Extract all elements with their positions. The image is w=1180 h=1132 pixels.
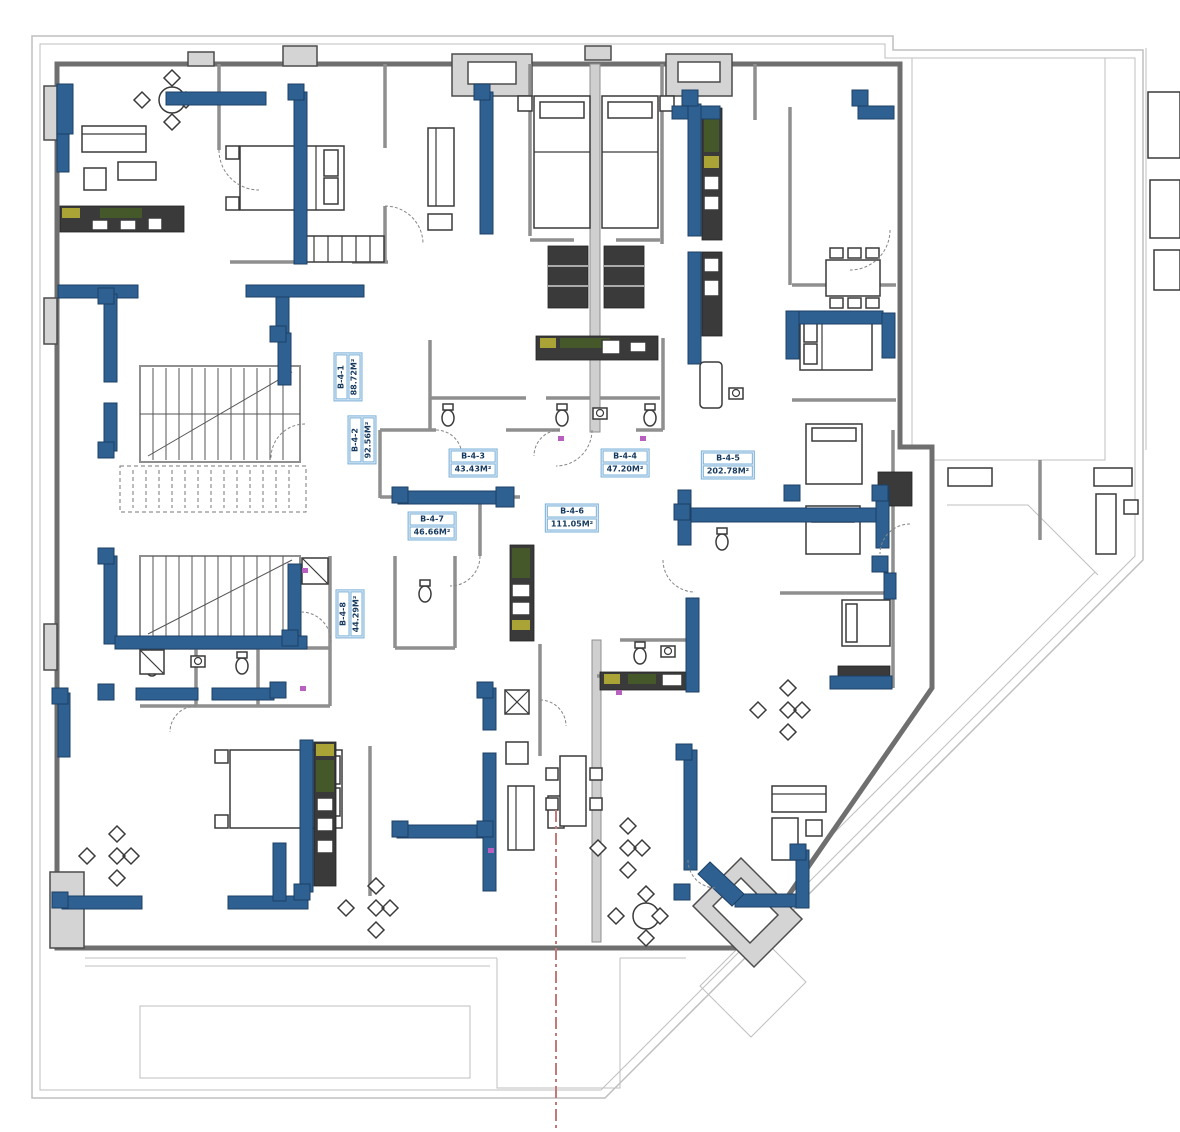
unit-area: 92.56M² xyxy=(363,418,375,463)
side-table-icon xyxy=(428,214,452,230)
unit-id: B-4-5 xyxy=(703,453,753,465)
wardrobe-icon xyxy=(300,236,384,262)
unit-area: 202.78M² xyxy=(703,466,753,478)
unit-label-b-4-2: B-4-2 92.56M² xyxy=(348,416,377,465)
unit-label-b-4-5: B-4-5 202.78M² xyxy=(701,451,755,480)
unit-area: 43.43M² xyxy=(451,464,496,476)
unit-label-b-4-4: B-4-4 47.20M² xyxy=(601,449,650,478)
unit-id: B-4-3 xyxy=(451,451,496,463)
kitchen-counter-icon xyxy=(60,206,184,232)
unit-area: 46.66M² xyxy=(410,527,455,539)
unit-id: B-4-1 xyxy=(336,355,348,400)
floor-plan-page: B-4-1 88.72M² B-4-2 92.56M² B-4-3 43.43M… xyxy=(0,0,1180,1132)
floor-plan-drawing xyxy=(0,0,1180,1132)
sofa-icon xyxy=(948,92,1180,554)
unit-label-b-4-8: B-4-8 44.29M² xyxy=(336,590,365,639)
unit-label-b-4-7: B-4-7 46.66M² xyxy=(408,512,457,541)
bathtub-icon xyxy=(700,362,722,408)
unit-area: 44.29M² xyxy=(351,592,363,637)
unit-label-b-4-6: B-4-6 111.05M² xyxy=(545,504,599,533)
unit-label-b-4-1: B-4-1 88.72M² xyxy=(334,353,363,402)
unit-id: B-4-8 xyxy=(338,592,350,637)
unit-id: B-4-7 xyxy=(410,514,455,526)
unit-area: 111.05M² xyxy=(547,519,597,531)
unit-area: 47.20M² xyxy=(603,464,648,476)
bed-icon xyxy=(226,146,344,210)
unit-id: B-4-2 xyxy=(350,418,362,463)
kitchen-counter-icon xyxy=(702,108,722,336)
kitchen-counter-icon xyxy=(536,336,658,360)
unit-id: B-4-6 xyxy=(547,506,597,518)
unit-id: B-4-4 xyxy=(603,451,648,463)
unit-label-b-4-3: B-4-3 43.43M² xyxy=(449,449,498,478)
sofa-icon xyxy=(428,128,454,206)
dining-table-icon xyxy=(826,248,880,308)
fridge-icon xyxy=(505,690,529,714)
unit-area: 88.72M² xyxy=(349,355,361,400)
kitchen-counter-icon xyxy=(314,742,336,886)
